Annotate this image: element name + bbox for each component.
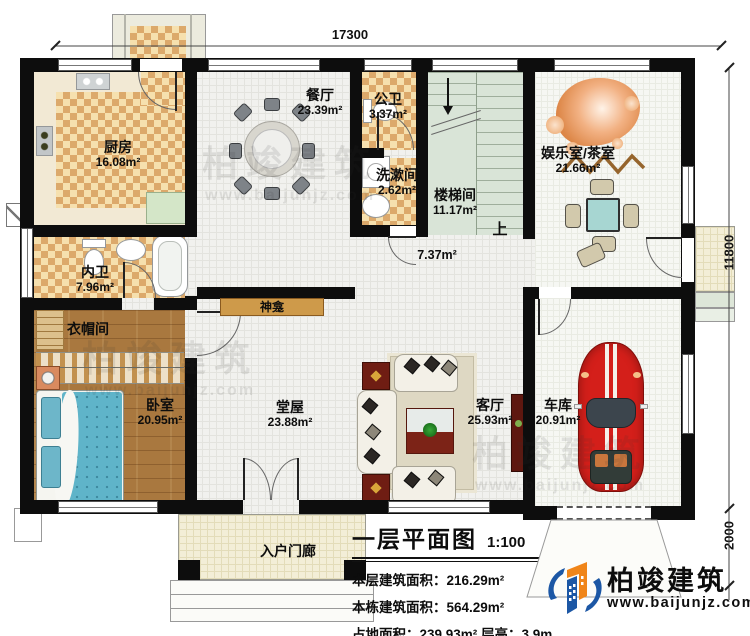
stairs-up-label: 上 xyxy=(492,222,507,239)
floor-plan: 神龛 柏竣建筑 www.baijunjz.com 柏竣建筑 www.baijun… xyxy=(0,0,750,636)
room-label-inner-wc: 内卫7.96m² xyxy=(76,265,114,294)
room-label-dining: 餐厅23.39m² xyxy=(298,88,343,117)
logo-url: www.baijunjz.com xyxy=(607,595,750,611)
room-label-cloakroom: 衣帽间 xyxy=(67,322,109,338)
room-label-washroom: 洗漱间2.62m² xyxy=(376,168,418,197)
logo-building-icon xyxy=(543,556,607,622)
brand-logo: 柏竣建筑 www.baijunjz.com xyxy=(543,556,750,622)
logo-name: 柏竣建筑 xyxy=(607,567,750,595)
room-label-bedroom: 卧室20.95m² xyxy=(138,398,183,427)
room-label-garage: 车库20.91m² xyxy=(536,398,581,427)
room-label-corridor: 7.37m² xyxy=(417,248,457,262)
room-label-entertainment: 娱乐室/茶室21.66m² xyxy=(541,146,615,175)
room-label-kitchen: 厨房16.08m² xyxy=(96,140,141,169)
room-label-living: 客厅25.93m² xyxy=(468,398,513,427)
room-label-public-wc: 公卫3.37m² xyxy=(369,92,407,121)
room-label-hall: 堂屋23.88m² xyxy=(268,400,313,429)
room-label-entry-porch: 入户门廊 xyxy=(260,544,316,560)
room-label-stairwell: 楼梯间11.17m² xyxy=(433,188,477,217)
